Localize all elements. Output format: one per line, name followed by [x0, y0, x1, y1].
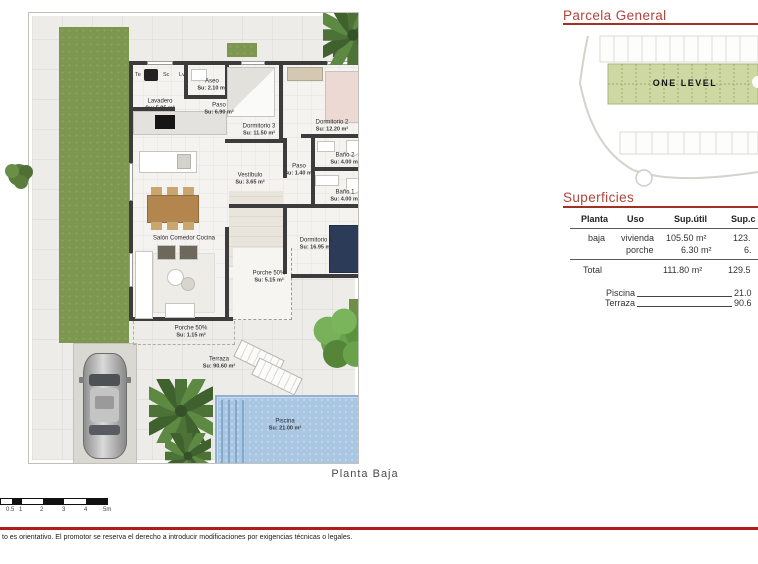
window — [129, 163, 133, 201]
wall — [229, 204, 359, 208]
car-mirror-left — [79, 377, 84, 383]
room-label-dormitorio-3: Dormitorio 3Su: 11.50 m² — [243, 123, 276, 136]
car-top-view — [83, 353, 127, 459]
dining-table — [147, 195, 199, 223]
room-label-bano-1: Baño 1Su: 4.00 m² — [330, 189, 359, 202]
scale-segment — [22, 499, 43, 504]
window — [129, 253, 133, 287]
scale-segment — [12, 499, 22, 504]
palm-tree-icon — [165, 433, 211, 464]
scale-segment — [64, 499, 86, 504]
extra-value-terraza: 90.6 — [734, 298, 752, 308]
armchair — [179, 245, 198, 260]
chair — [151, 222, 162, 230]
wall — [291, 274, 359, 278]
scale-label: 3 — [62, 507, 65, 513]
room-label-aseo: AseoSu: 2.10 m² — [197, 78, 226, 91]
armchair — [157, 245, 176, 260]
car-mirror-right — [126, 377, 131, 383]
scale-segment — [43, 499, 64, 504]
bathroom-sink — [315, 175, 339, 186]
scale-label: 2 — [40, 507, 43, 513]
bed-dormitorio-2 — [325, 71, 359, 123]
cell-uso: vivienda — [621, 233, 654, 243]
rule-red — [563, 206, 758, 208]
scale-segment — [86, 499, 107, 504]
extra-label-piscina: Piscina — [606, 288, 635, 298]
total-sup-util: 111.80 m² — [663, 265, 702, 275]
room-label-terraza: TerrazaSu: 90.60 m² — [203, 356, 235, 369]
appliance-label: Lv — [179, 72, 185, 78]
room-label-dormitorio-2: Dormitorio 2Su: 12.20 m² — [316, 119, 349, 132]
washer-icon — [144, 69, 158, 81]
room-label-porche-2: Porche 50%Su: 1.15 m² — [175, 325, 208, 338]
cell-sup-util: 105.50 m² — [666, 233, 707, 243]
room-label-bano-2: Baño 2Su: 4.00 m² — [330, 152, 359, 165]
room-label-salon: Salón Comedor Cocina — [153, 236, 215, 243]
cooktop — [155, 115, 175, 129]
bathroom-sink — [317, 141, 335, 152]
wall — [315, 167, 359, 171]
wall — [184, 61, 188, 99]
scale-label: 5m — [103, 507, 111, 513]
room-label-paso: PasoSu: 6.90 m² — [204, 102, 233, 115]
room-label-porche: Porche 50%Su: 5.15 m² — [253, 270, 286, 283]
cell-planta: baja — [588, 233, 605, 243]
sofa — [135, 251, 153, 319]
room-label-vestibulo: VestíbuloSu: 3.65 m² — [235, 172, 264, 185]
car-rear-window — [89, 425, 120, 435]
chair — [167, 222, 178, 230]
chair — [167, 187, 178, 195]
chair — [151, 187, 162, 195]
total-sup-construida: 129.5 — [728, 265, 751, 275]
window — [241, 61, 265, 65]
col-header-sup-construida: Sup.c — [731, 214, 756, 224]
hedge — [227, 43, 257, 57]
scale-label: 0.5 — [6, 507, 14, 513]
tree-icon — [309, 305, 359, 375]
car-windshield — [89, 374, 120, 386]
window — [147, 61, 173, 65]
side-table — [181, 277, 195, 291]
sofa-small — [165, 303, 195, 318]
col-header-uso: Uso — [627, 214, 644, 224]
scale-label: 1 — [19, 507, 22, 513]
room-label-piscina: PiscinaSu: 21.00 m² — [269, 418, 301, 431]
wall — [225, 227, 229, 321]
footer-red-line — [0, 527, 758, 530]
appliance-label: Sc — [163, 72, 169, 78]
legal-disclaimer: to es orientativo. El promotor se reserv… — [2, 534, 352, 541]
total-label: Total — [583, 265, 602, 275]
cell-sup-util: 6.30 m² — [681, 245, 712, 255]
wardrobe — [287, 67, 323, 81]
site-map — [558, 28, 758, 188]
palm-tree-icon — [323, 12, 359, 65]
chair — [183, 187, 194, 195]
dotted-line — [637, 296, 732, 297]
bed-dormitorio-3 — [227, 67, 275, 117]
dotted-line — [637, 306, 732, 307]
scale-segment — [1, 499, 12, 504]
car-sunroof — [95, 396, 114, 409]
rule-red — [563, 23, 758, 25]
sink — [177, 154, 191, 169]
floor-plan: Te Sc Lv LavaderoSu: 5.95 m² AseoSu: 2.1… — [28, 12, 359, 464]
pool-steps — [221, 400, 247, 464]
bed-dormitorio-1 — [329, 225, 359, 273]
cell-sup-construida: 6. — [744, 245, 752, 255]
bush-icon — [4, 160, 34, 190]
wall — [301, 134, 359, 138]
room-label-lavadero: LavaderoSu: 5.95 m² — [145, 98, 174, 111]
scale-bar — [0, 498, 108, 505]
scale-label: 4 — [84, 507, 87, 513]
wall — [225, 139, 283, 143]
chair — [183, 222, 194, 230]
site-label: ONE LEVEL — [630, 78, 740, 88]
table-rule — [570, 259, 758, 260]
plan-caption: Planta Baja — [300, 468, 430, 480]
extra-value-piscina: 21.0 — [734, 288, 752, 298]
brochure-page: Te Sc Lv LavaderoSu: 5.95 m² AseoSu: 2.1… — [0, 0, 758, 564]
wall — [279, 61, 283, 143]
section-title-superficies: Superficies — [563, 190, 634, 205]
appliance-label: Te — [135, 72, 141, 78]
room-label-dormitorio-1: Dormitorio 1Su: 16.95 m² — [300, 237, 333, 250]
col-header-sup-util: Sup.útil — [674, 214, 707, 224]
section-title-parcela: Parcela General — [563, 8, 667, 23]
lawn — [59, 27, 129, 343]
cell-uso: porche — [626, 245, 654, 255]
room-label-paso-2: PasoSu: 1.40 m² — [284, 163, 313, 176]
wall — [283, 208, 287, 274]
extra-label-terraza: Terraza — [605, 298, 635, 308]
wall — [184, 95, 229, 99]
cell-sup-construida: 123. — [733, 233, 751, 243]
table-rule — [570, 228, 758, 229]
col-header-planta: Planta — [581, 214, 608, 224]
